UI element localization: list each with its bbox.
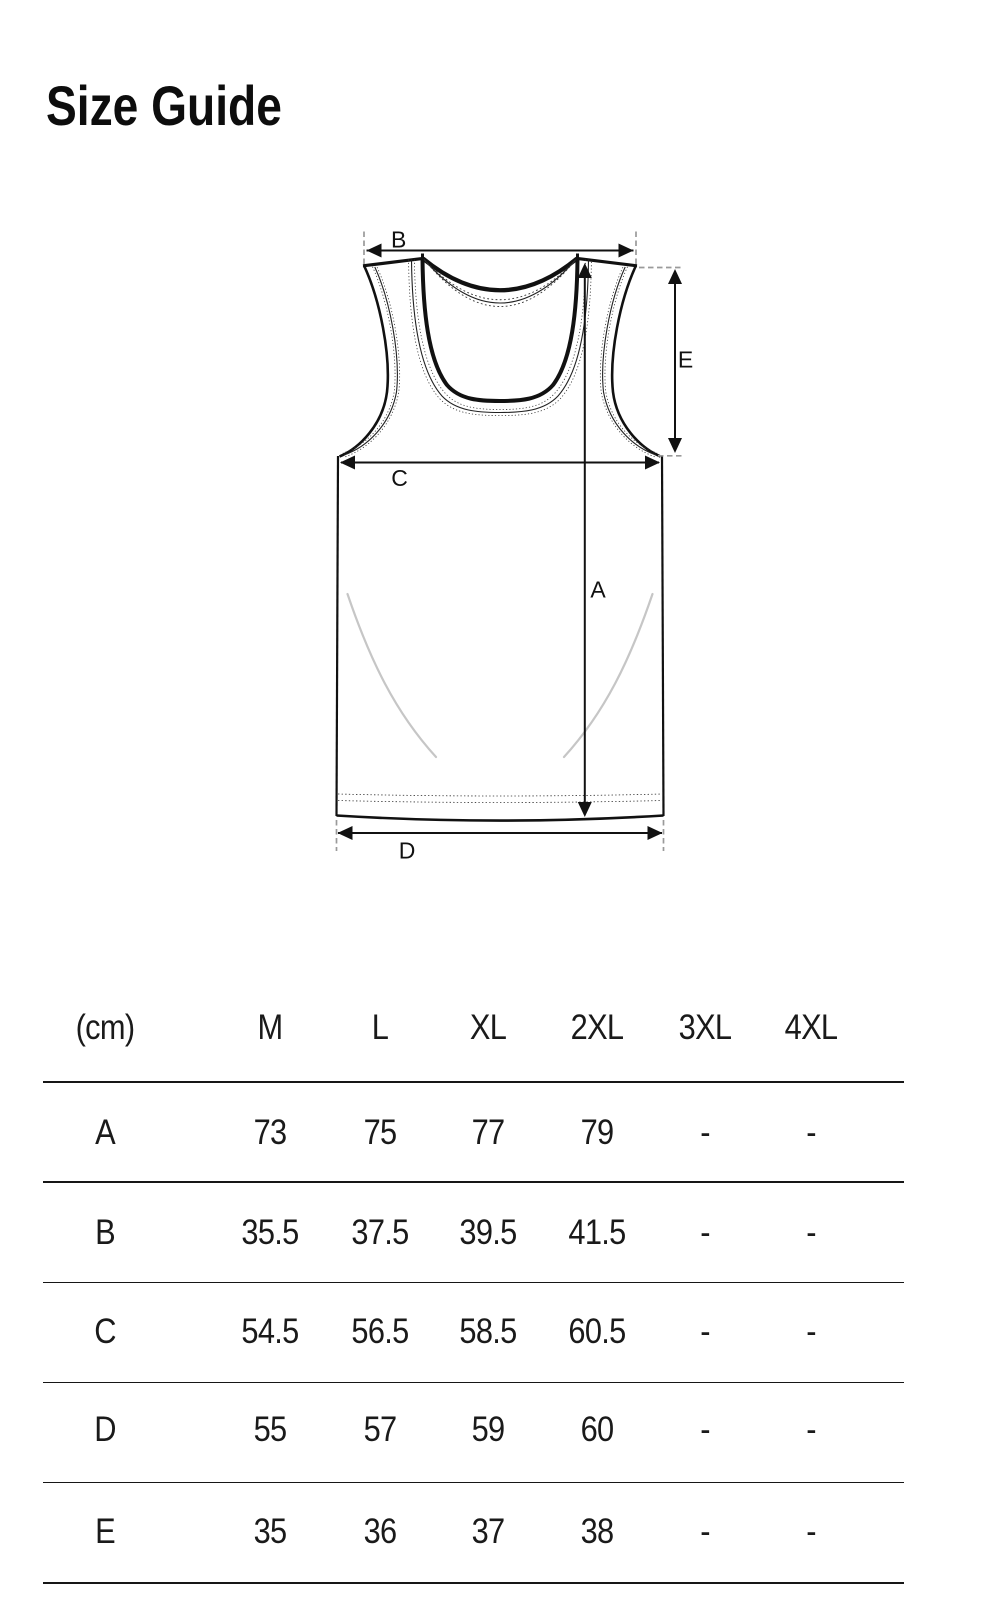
svg-text:A: A	[590, 577, 606, 603]
svg-text:B: B	[391, 227, 406, 253]
svg-text:C: C	[391, 465, 408, 491]
svg-text:D: D	[399, 837, 416, 863]
svg-text:E: E	[678, 347, 693, 373]
